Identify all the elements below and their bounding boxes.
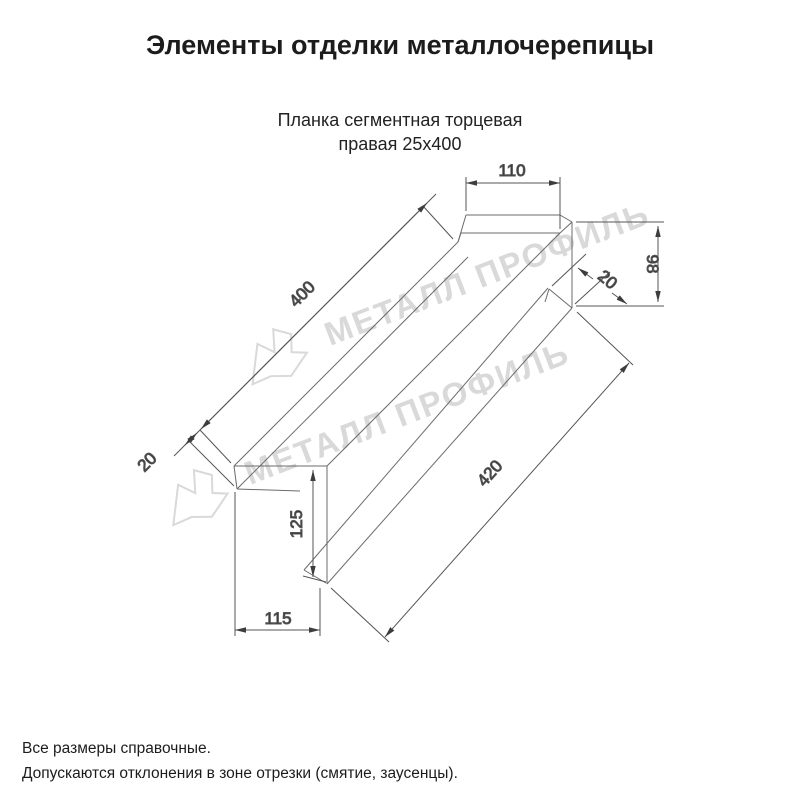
dimension-label-420: 420 xyxy=(473,456,506,490)
page-title: Элементы отделки металлочерепицы xyxy=(146,30,654,60)
dimension-label-115: 115 xyxy=(264,609,291,628)
dimension-left-end-height: 125 xyxy=(287,470,326,582)
dimension-label-400: 400 xyxy=(285,277,318,310)
technical-drawing: МЕТАЛЛ ПРОФИЛЬ МЕТАЛЛ ПРОФИЛЬ Элементы о… xyxy=(0,0,800,800)
dimension-label-98: 98 xyxy=(643,255,662,274)
metal-profil-logo-icon xyxy=(158,462,234,531)
dimension-left-hem: 20 xyxy=(134,433,197,476)
footer-note-line1: Все размеры справочные. xyxy=(22,740,211,757)
dimension-left-end-width: 115 xyxy=(235,492,320,636)
catalog-page: МЕТАЛЛ ПРОФИЛЬ МЕТАЛЛ ПРОФИЛЬ Элементы о… xyxy=(0,0,800,800)
product-subtitle-line1: Планка сегментная торцевая xyxy=(278,110,523,130)
footer-note-line2: Допускаются отклонения в зоне отрезки (с… xyxy=(22,765,458,782)
dimension-label-20-left: 20 xyxy=(134,449,161,476)
dimension-label-20-right: 20 xyxy=(594,266,621,293)
watermark-lower: МЕТАЛЛ ПРОФИЛЬ xyxy=(158,330,578,531)
dimension-label-125: 125 xyxy=(287,510,306,538)
product-subtitle-line2: правая 25х400 xyxy=(339,134,462,154)
dimension-top-flange-width: 110 xyxy=(466,161,560,229)
watermark-text: МЕТАЛЛ ПРОФИЛЬ xyxy=(239,333,574,491)
dimension-bottom-edge-length: 420 xyxy=(331,312,633,642)
dimension-label-110: 110 xyxy=(498,161,525,180)
